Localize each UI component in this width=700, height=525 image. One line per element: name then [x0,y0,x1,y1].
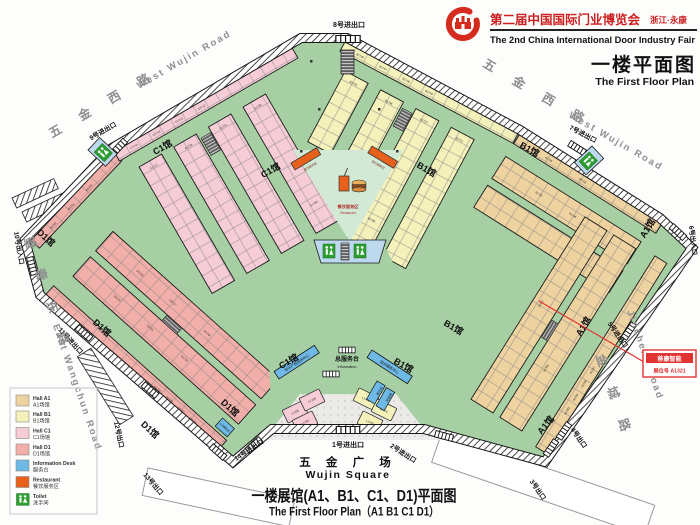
svg-text:餐饮服务区: 餐饮服务区 [33,482,59,490]
toilet-icon [354,244,366,258]
gate-icon-inner-top [339,347,355,353]
floor-plan-svg: D1782 D1781 D1780 D1馆服务台 D1709 D1708 D17… [0,0,700,525]
fair-location: 浙江·永康 [650,15,687,25]
svg-text:Hall D1: Hall D1 [33,445,51,451]
plan-title-cn: 一楼平面图 [591,53,696,76]
caption-cn: 一楼展馆(A1、B1、C1、D1)平面图 [252,486,457,505]
courtyard-restaurant-label-en: Restaurant [340,211,356,215]
fair-title-cn: 第二届中国国际门业博览会 [490,12,640,27]
legend-item-toilet: Toilet 洗手间 [17,494,49,507]
fair-title-en: The 2nd China International Door Industr… [490,35,696,45]
callout-booth: 展位号 A1321 [653,367,685,375]
courtyard-restaurant-label-cn: 餐饮服务区 [337,203,360,210]
svg-text:Hall B1: Hall B1 [33,412,51,418]
exit-label-8: 8号进出口 [333,20,365,29]
svg-text:洗手间: 洗手间 [33,499,49,507]
svg-text:Hall C1: Hall C1 [33,429,51,435]
escalator-icon [341,50,354,74]
svg-text:Restaurant: Restaurant [33,478,60,484]
callout-company: 移康智能 [657,355,681,363]
main-info-desk-cn: 总服务台 [335,355,359,363]
svg-text:A1场馆: A1场馆 [33,401,50,409]
svg-text:Hall A1: Hall A1 [33,396,51,402]
gate-icon-exit8 [336,35,360,42]
square-label-cn: 五 金 广 场 [299,455,397,469]
toilet-icon [323,244,335,258]
svg-text:Information Desk: Information Desk [33,461,75,467]
svg-text:D1场馆: D1场馆 [33,450,50,458]
gate-icon-inner-bottom [323,371,339,377]
svg-text:服务台: 服务台 [33,466,49,474]
svg-text:B1场馆: B1场馆 [33,417,50,425]
toilet-icon [17,494,30,506]
square-label-en: Wujin Square [306,469,391,481]
plan-title-en: The First Floor Plan [595,76,694,88]
svg-text:Toilet: Toilet [33,494,47,500]
gate-icon-exit1 [336,426,359,433]
main-info-desk-en: Information [338,365,357,369]
caption-en: The First Floor Plan（A1 B1 C1 D1） [269,504,439,519]
exit-label-1: 1号进出口 [332,440,364,449]
floor-plan-page: D1782 D1781 D1780 D1馆服务台 D1709 D1708 D17… [0,0,700,525]
svg-text:C1场馆: C1场馆 [33,433,50,441]
escalator-icon [341,243,349,260]
